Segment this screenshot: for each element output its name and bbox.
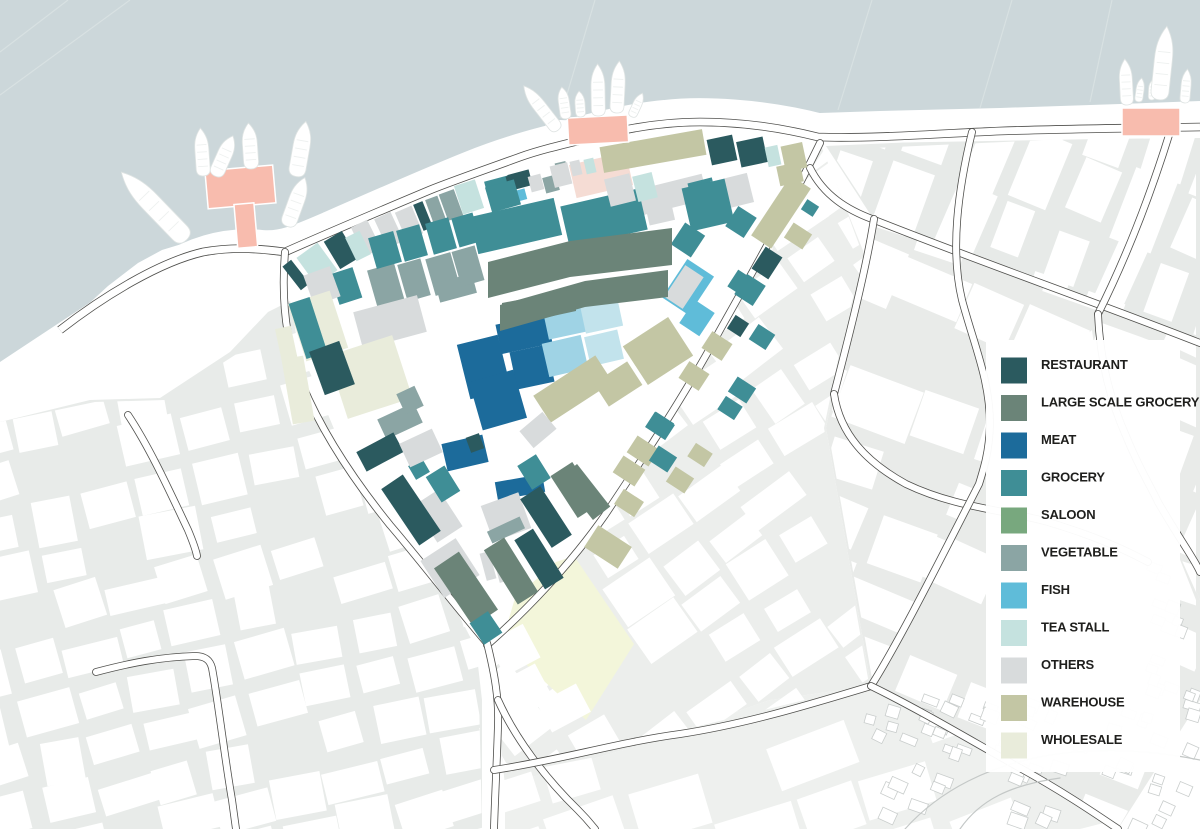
svg-text:VEGETABLE: VEGETABLE	[1041, 545, 1118, 560]
svg-text:GROCERY: GROCERY	[1041, 470, 1105, 485]
svg-text:WAREHOUSE: WAREHOUSE	[1041, 695, 1125, 710]
svg-text:SALOON: SALOON	[1041, 507, 1095, 522]
svg-text:WHOLESALE: WHOLESALE	[1041, 732, 1123, 747]
svg-text:OTHERS: OTHERS	[1041, 657, 1095, 672]
svg-text:FISH: FISH	[1041, 582, 1070, 597]
svg-text:RESTAURANT: RESTAURANT	[1041, 357, 1128, 372]
svg-text:MEAT: MEAT	[1041, 432, 1076, 447]
svg-text:LARGE SCALE GROCERY: LARGE SCALE GROCERY	[1041, 395, 1200, 410]
svg-text:TEA STALL: TEA STALL	[1041, 620, 1110, 635]
